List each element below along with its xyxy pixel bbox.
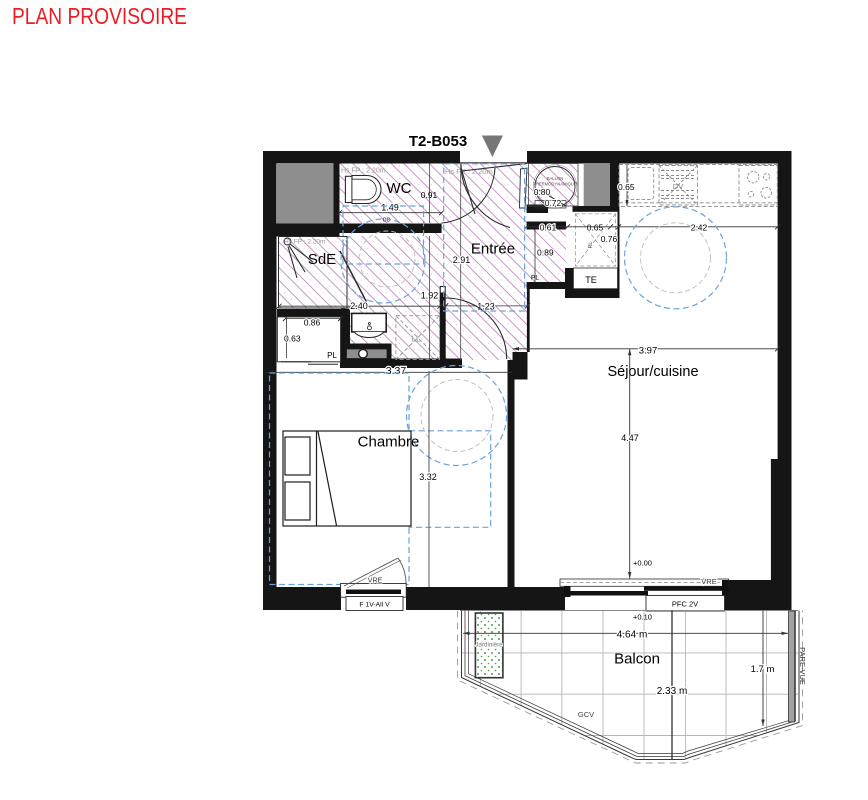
svg-text:F 1V-All V: F 1V-All V: [359, 602, 390, 609]
svg-text:0.80: 0.80: [534, 187, 551, 197]
svg-text:PL: PL: [531, 275, 539, 282]
svg-text:DV: DV: [673, 182, 683, 191]
svg-text:WC: WC: [387, 180, 412, 197]
svg-text:2.91: 2.91: [453, 255, 471, 265]
svg-text:PARE-VUE: PARE-VUE: [798, 647, 807, 685]
svg-text:PL: PL: [327, 351, 337, 360]
svg-text:LL: LL: [411, 334, 421, 344]
svg-text:TE: TE: [585, 275, 597, 285]
svg-text:0.76: 0.76: [601, 234, 618, 244]
svg-text:0.89: 0.89: [537, 248, 554, 258]
svg-text:4.47: 4.47: [621, 433, 639, 443]
svg-text:0.65: 0.65: [587, 223, 604, 233]
svg-text:THERMODYNAMIQUE: THERMODYNAMIQUE: [533, 182, 577, 187]
svg-text:Jardinière: Jardinière: [475, 642, 503, 649]
svg-text:0.65: 0.65: [618, 182, 635, 192]
svg-text:3.37: 3.37: [386, 365, 407, 377]
svg-text:+0.10: +0.10: [633, 613, 652, 622]
svg-text:Entrée: Entrée: [471, 241, 515, 258]
svg-text:Chambre: Chambre: [358, 434, 420, 451]
svg-text:SdE: SdE: [308, 251, 336, 268]
svg-text:+0.00: +0.00: [633, 559, 652, 568]
svg-text:GCV: GCV: [578, 710, 594, 719]
svg-text:PLAN PROVISOIRE: PLAN PROVISOIRE: [12, 3, 187, 29]
svg-text:1.7 m: 1.7 m: [751, 664, 775, 675]
svg-text:PFC 2V: PFC 2V: [672, 600, 698, 609]
svg-text:3.32: 3.32: [419, 472, 437, 482]
svg-text:4.64 m: 4.64 m: [617, 630, 648, 641]
svg-text:2.33 m: 2.33 m: [657, 686, 688, 697]
svg-text:BALLON: BALLON: [547, 176, 564, 181]
svg-text:3.97: 3.97: [639, 346, 658, 357]
svg-text:T2-B053: T2-B053: [409, 133, 467, 150]
svg-text:Hs FP : 2.20m: Hs FP : 2.20m: [284, 239, 325, 246]
svg-text:2.42: 2.42: [691, 223, 708, 233]
svg-text:0.86: 0.86: [304, 318, 321, 328]
svg-text:2.40: 2.40: [350, 301, 368, 311]
svg-text:VRE: VRE: [701, 577, 716, 586]
svg-text:1.49: 1.49: [381, 203, 399, 213]
svg-text:0.72: 0.72: [545, 198, 562, 208]
svg-text:PL: PL: [588, 242, 594, 249]
svg-text:Séjour/cuisine: Séjour/cuisine: [607, 364, 698, 380]
svg-text:Balcon: Balcon: [614, 651, 660, 668]
svg-text:1.23: 1.23: [477, 302, 495, 312]
svg-text:0.61: 0.61: [540, 223, 557, 233]
svg-text:Hs FP : 2.20m: Hs FP : 2.20m: [341, 168, 386, 175]
svg-text:0.63: 0.63: [284, 334, 301, 344]
svg-text:VRE: VRE: [368, 578, 383, 585]
svg-text:CD: CD: [383, 218, 391, 224]
